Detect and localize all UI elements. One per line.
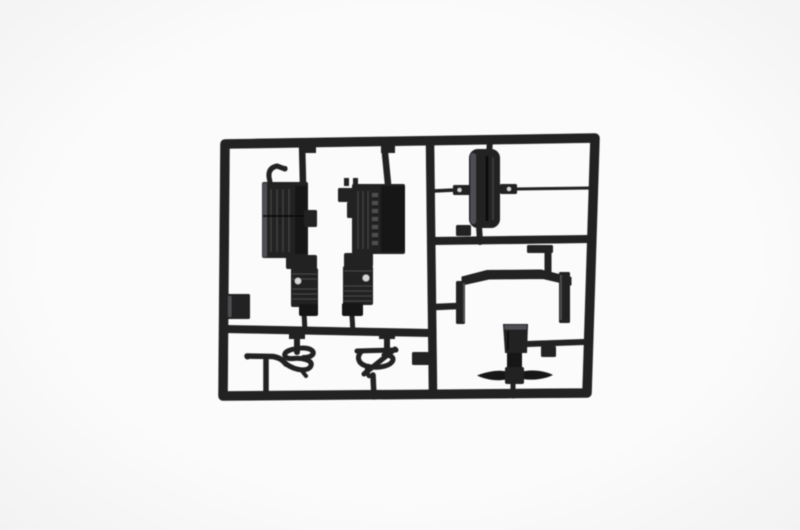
cylinder-hole [363, 275, 370, 282]
base-hub [505, 367, 524, 384]
runner-bracket-left [435, 306, 458, 307]
left-protrusion [338, 188, 354, 202]
collar [344, 253, 373, 267]
block-highlight [263, 183, 268, 257]
runner-hose2-bottom [373, 375, 374, 397]
runner-hose2-foot [379, 333, 395, 339]
bracket-left-leg-highlight [463, 283, 465, 322]
tank-right-tab-hole [507, 187, 511, 191]
cylinder-tip [342, 303, 363, 316]
runner-tank-left [433, 190, 455, 191]
small-block-under-tank [456, 225, 471, 236]
square-tab-highlight [228, 296, 232, 317]
runner-part2-bottom [352, 316, 353, 333]
frame-left-divider [224, 329, 432, 333]
runner-part2-foot [381, 146, 395, 153]
runner-tank-right [515, 188, 591, 189]
runner-tank-bottom [479, 226, 480, 242]
runner-pedestal-block [541, 346, 556, 357]
tank-highlight [471, 153, 477, 224]
cylinder-hole [295, 278, 301, 284]
hook-tip [282, 166, 287, 171]
collar [286, 255, 317, 269]
frame-right-divider [431, 239, 591, 241]
bracket-right-leg-highlight [560, 275, 562, 320]
small-block-center [412, 352, 429, 365]
photo-background [0, 0, 800, 530]
side-step [304, 210, 317, 227]
block-dark-panel [381, 186, 405, 252]
pedestal-block-top [505, 325, 527, 330]
cylinder-tip [299, 304, 318, 316]
sprue-image [0, 0, 800, 530]
molding-tab-left-rail [226, 294, 250, 319]
pedestal-stem [507, 353, 522, 368]
hose-arm-end [245, 354, 251, 360]
product-photo: Product photograph of a dark charcoal-bl… [0, 0, 800, 530]
tank-left-tab-hole [458, 188, 462, 192]
runner-pedestal-right [527, 342, 584, 344]
hose-tail [367, 366, 369, 376]
runner-hose1-foot [289, 333, 305, 339]
runner-part1-foot [301, 146, 316, 153]
top-post-1 [344, 178, 349, 186]
frame-vertical-divider [430, 142, 433, 394]
